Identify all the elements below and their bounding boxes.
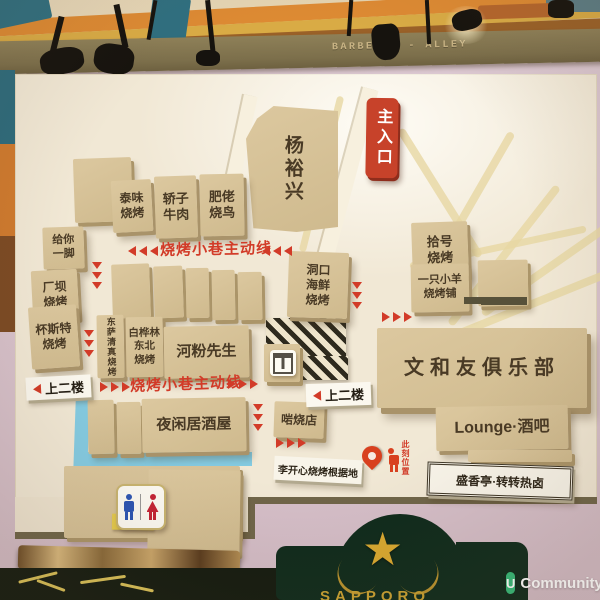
stall-label: 文和友俱乐部 <box>404 356 560 381</box>
wall-strip-orange <box>0 144 15 236</box>
map-block <box>468 450 572 462</box>
route-arrows-right <box>276 438 306 448</box>
map-block <box>238 272 263 320</box>
stall-label: 杯斯特 烧烤 <box>35 321 73 353</box>
stall-label: 夜闲居酒屋 <box>156 415 231 435</box>
sign-label: 盛香亭·转转热卤 <box>456 471 545 491</box>
stall-label: Lounge·酒吧 <box>454 417 549 439</box>
upstairs-label: 上二楼 <box>45 377 85 398</box>
stall-block-baihualin: 白桦林 东北 烧烤 <box>125 317 163 378</box>
track-lamp <box>548 0 574 18</box>
stall-label: 杨裕兴 <box>280 135 304 204</box>
stall-label: 啱烧店 <box>281 412 318 428</box>
route-arrows-down <box>84 330 94 357</box>
route-arrows-down <box>253 404 263 431</box>
stall-block-beisite: 杯斯特 烧烤 <box>28 304 80 369</box>
map-block <box>212 270 236 320</box>
star-icon: ★ <box>362 522 403 576</box>
map-block <box>153 266 184 319</box>
stall-label: 肥佬 烧鸟 <box>209 189 236 222</box>
chalkboard-sign <box>0 568 314 600</box>
stall-label: 轿子 牛肉 <box>162 190 189 223</box>
divider <box>140 494 141 520</box>
stall-block-am-shao-dian: 啱烧店 <box>273 401 324 439</box>
stall-block-dongkou-seafood: 洞口 海鲜 烧烤 <box>287 251 349 319</box>
stall-label: 拾号 烧烤 <box>426 233 453 266</box>
restroom-sign <box>116 484 166 530</box>
wall-strip-brown <box>0 236 15 332</box>
watermark: U Community <box>506 568 600 598</box>
you-are-here-label: 此刻位置 <box>400 440 411 476</box>
stall-block-yizhi-xiaoyang: 一只小羊 烧烤铺 <box>411 263 470 312</box>
sign-label: 李开心烧烤根据地 <box>278 460 359 479</box>
upstairs-sign-left: 上二楼 <box>25 374 91 400</box>
stall-block-yexianju: 夜闲居酒屋 <box>142 397 247 453</box>
map-ledge <box>481 297 527 305</box>
stall-block-dongsa-halal: 东萨清真烧烤 <box>96 315 124 378</box>
stall-label: 给你 一脚 <box>52 234 75 262</box>
watermark-label: Community <box>520 575 600 592</box>
route-arrows-left <box>128 246 158 256</box>
watermark-badge: U <box>506 572 515 594</box>
map-block <box>117 402 142 454</box>
route-arrows-right <box>228 379 258 389</box>
gift-shop-sign <box>270 350 296 376</box>
stall-label: 白桦林 东北 烧烤 <box>128 327 160 367</box>
stall-block-wenheyou-club: 文和友俱乐部 <box>377 328 587 408</box>
map-ledge <box>464 297 482 304</box>
map-block <box>88 400 115 454</box>
you-are-here-person-icon <box>388 448 400 472</box>
wall-strip-teal <box>0 70 15 144</box>
route-arrows-down <box>352 282 362 309</box>
beer-sign: ★ SAPPORO <box>276 514 528 600</box>
male-restroom-icon <box>124 494 134 520</box>
main-entrance-label: 主入口 <box>369 108 394 168</box>
stall-label: 泰味 烧烤 <box>119 190 145 221</box>
route-arrows-right <box>382 312 412 322</box>
stall-label: 洞口 海鲜 烧烤 <box>305 262 331 308</box>
stall-block-feilao: 肥佬 烧鸟 <box>199 174 244 237</box>
board-edge <box>248 497 255 537</box>
route-label-top: 烧烤小巷主动线 <box>160 237 272 260</box>
stall-label: 河粉先生 <box>176 342 236 362</box>
route-arrows-right <box>100 382 130 392</box>
gift-icon <box>273 353 293 374</box>
map-block <box>111 263 151 318</box>
sign-likaixin-bbq-base: 李开心烧烤根据地 <box>273 456 362 485</box>
track-lamp <box>196 50 220 66</box>
stall-label: 一只小羊 烧烤铺 <box>418 274 462 302</box>
female-restroom-icon <box>147 494 159 520</box>
hatched-zone <box>300 356 348 380</box>
route-label-bottom: 烧烤小巷主动线 <box>130 371 243 396</box>
route-arrows-down <box>92 262 102 289</box>
stall-block-lounge-bar: Lounge·酒吧 <box>436 405 569 451</box>
upstairs-label: 上二楼 <box>325 384 365 404</box>
upstairs-sign-right: 上二楼 <box>306 382 372 407</box>
sign-shengxiangting: 盛香亭·转转热卤 <box>426 461 573 500</box>
stall-block-yangyuxing: 杨裕兴 <box>246 106 338 232</box>
route-arrows-left <box>262 246 292 256</box>
stall-block-taiwei: 泰味 烧烤 <box>111 179 154 233</box>
stall-label: 东萨清真烧烤 <box>104 316 116 376</box>
main-entrance-badge: 主入口 <box>365 98 398 179</box>
stall-block-geini-yijiao: 给你 一脚 <box>42 226 84 269</box>
map-block <box>186 268 210 318</box>
blue-route <box>80 452 252 466</box>
beer-sign-text: SAPPORO <box>320 588 430 600</box>
stall-block-jiaozi-beef: 轿子 牛肉 <box>154 175 198 238</box>
